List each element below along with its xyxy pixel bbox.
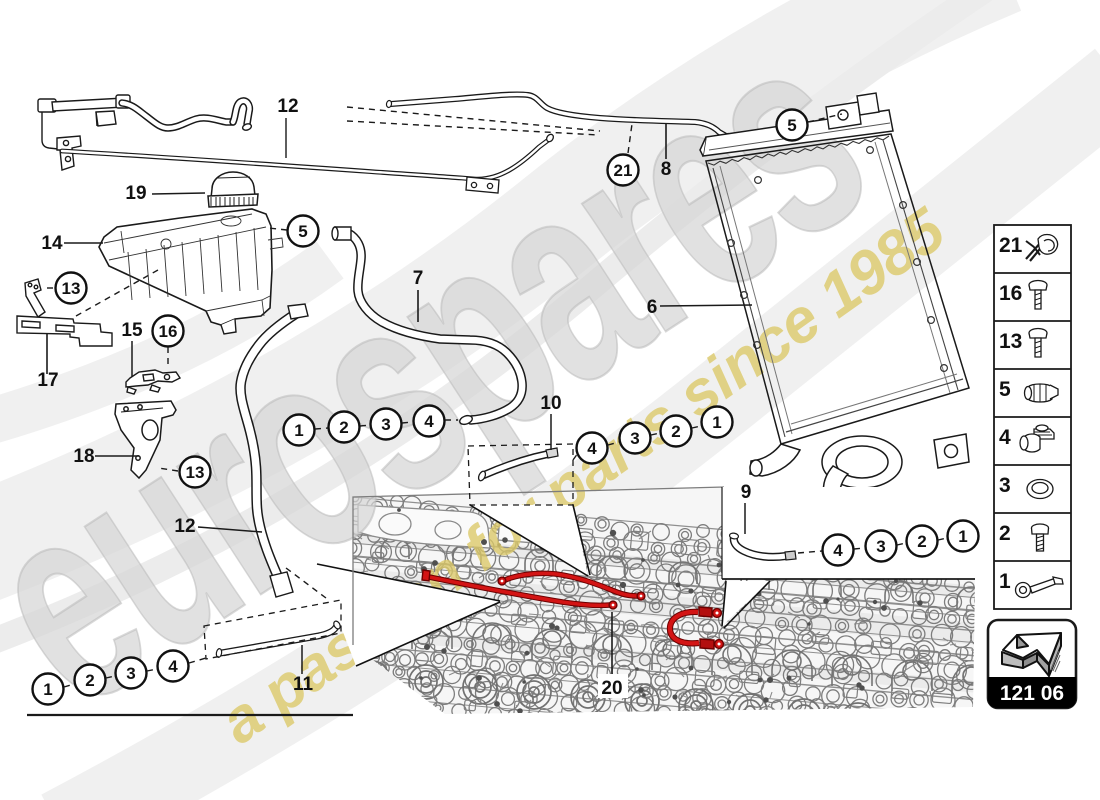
svg-text:20: 20 [601,678,622,699]
svg-text:6: 6 [647,297,658,318]
svg-text:2: 2 [339,418,348,437]
svg-text:13: 13 [62,279,81,298]
svg-text:2: 2 [917,532,926,551]
svg-text:4: 4 [587,439,597,458]
svg-text:3: 3 [630,429,639,448]
svg-text:1: 1 [712,413,721,432]
svg-text:3: 3 [999,474,1011,497]
svg-text:2: 2 [671,422,680,441]
svg-text:1: 1 [999,570,1011,593]
svg-text:21: 21 [999,234,1023,257]
svg-text:9: 9 [741,482,752,503]
svg-text:1: 1 [43,680,52,699]
svg-text:11: 11 [293,674,314,695]
svg-text:14: 14 [41,233,63,254]
svg-text:1: 1 [958,527,967,546]
svg-text:4: 4 [168,657,178,676]
svg-text:3: 3 [381,415,390,434]
svg-text:7: 7 [413,268,424,289]
svg-text:15: 15 [121,320,143,341]
svg-text:21: 21 [614,161,633,180]
svg-text:18: 18 [73,446,94,467]
svg-text:13: 13 [186,463,205,482]
svg-text:5: 5 [999,378,1011,401]
svg-text:16: 16 [999,282,1022,305]
svg-text:3: 3 [126,664,135,683]
svg-text:8: 8 [661,159,672,180]
svg-text:121 06: 121 06 [1000,682,1064,705]
svg-text:16: 16 [159,322,178,341]
svg-text:3: 3 [876,537,885,556]
svg-text:13: 13 [999,330,1022,353]
svg-text:19: 19 [125,183,146,204]
svg-text:2: 2 [999,522,1011,545]
svg-text:12: 12 [277,96,298,117]
svg-text:17: 17 [37,370,58,391]
svg-text:4: 4 [999,426,1011,449]
svg-text:4: 4 [424,412,434,431]
svg-text:4: 4 [833,541,843,560]
svg-text:2: 2 [85,671,94,690]
svg-text:5: 5 [298,222,307,241]
svg-text:12: 12 [174,516,195,537]
svg-text:1: 1 [294,421,303,440]
svg-text:5: 5 [787,116,796,135]
svg-text:10: 10 [540,393,561,414]
